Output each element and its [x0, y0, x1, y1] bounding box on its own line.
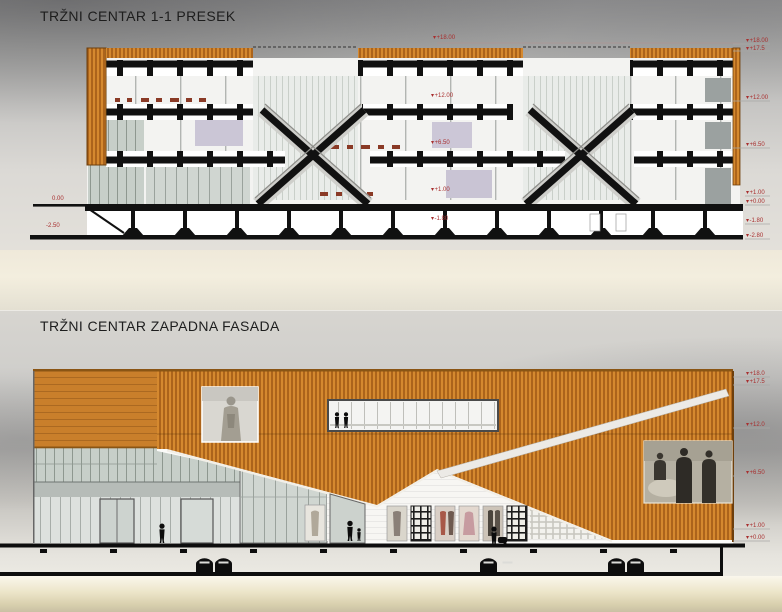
level-marker: ▾+1.00: [746, 190, 765, 196]
section-basement: [30, 204, 743, 240]
facade-leader-lines: [733, 377, 770, 541]
level-marker: 0.00: [52, 196, 64, 202]
level-marker: ▾+12.00: [746, 95, 768, 101]
facade-title: TRŽNI CENTAR ZAPADNA FASADA: [40, 318, 280, 334]
level-marker: ▾+6.50: [746, 142, 765, 148]
level-marker: ▾+1.00: [746, 523, 765, 529]
level-marker: ▾-2.80: [746, 233, 763, 239]
level-marker: ▾+12.00: [431, 93, 453, 99]
facade-drawing: [0, 369, 770, 576]
level-marker: ▾+6.50: [431, 140, 450, 146]
facade-ground: [0, 544, 745, 577]
level-marker: ▾+18.00: [746, 38, 768, 44]
level-marker: ▾-1.80: [431, 216, 448, 222]
billboard-men: [644, 441, 732, 503]
architectural-board: TRŽNI CENTAR 1-1 PRESEK TRŽNI CENTAR ZAP…: [0, 0, 782, 612]
level-marker: ▾+12.0: [746, 422, 765, 428]
facade-window-strip: [328, 400, 498, 431]
level-marker: ▾-1.80: [746, 218, 763, 224]
section-interior: [87, 58, 740, 205]
level-marker: ▾+0.00: [746, 535, 765, 541]
billboard-woman: [202, 387, 258, 442]
drawings-canvas: [0, 0, 782, 612]
level-marker: ▾+17.5: [746, 46, 765, 52]
section-title: TRŽNI CENTAR 1-1 PRESEK: [40, 8, 236, 24]
level-marker: -2.50: [46, 223, 60, 229]
level-marker: ▾+0.00: [746, 199, 765, 205]
level-marker: ▾+6.50: [746, 470, 765, 476]
level-marker: ▾+1.00: [431, 187, 450, 193]
level-marker: ▾+17.5: [746, 379, 765, 385]
level-marker: ▾+18.0: [746, 371, 765, 377]
section-core: [705, 78, 731, 204]
car-silhouettes: [196, 558, 644, 572]
section-drawing: [30, 43, 770, 240]
level-marker: ▾+18.00: [433, 35, 455, 41]
